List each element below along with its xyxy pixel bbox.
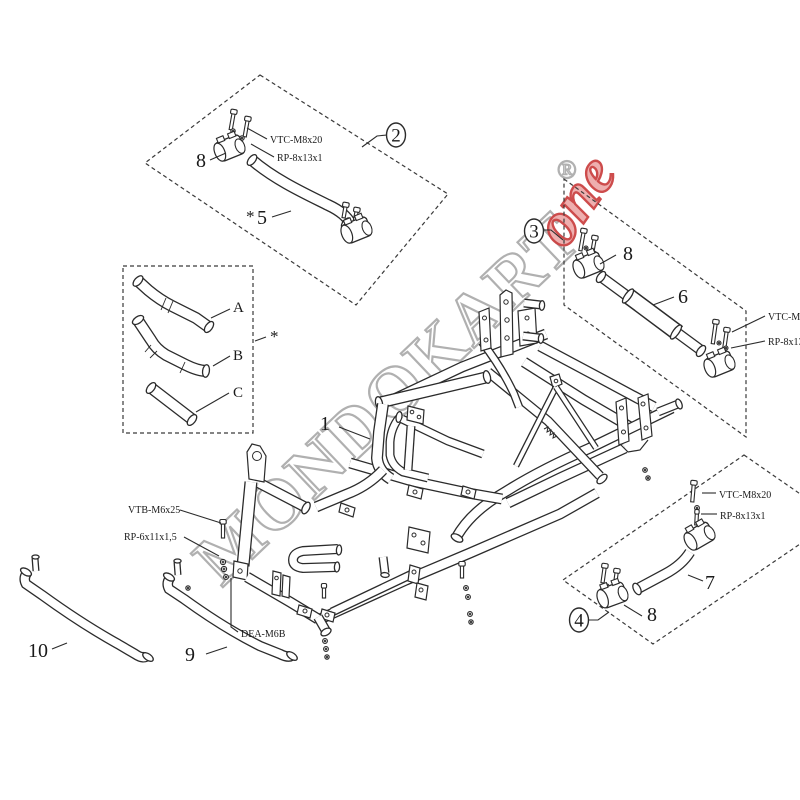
svg-text:RP-8x13x1: RP-8x13x1 xyxy=(277,153,323,164)
svg-text:4: 4 xyxy=(574,611,584,632)
svg-text:6: 6 xyxy=(678,286,688,308)
svg-text:8: 8 xyxy=(623,243,633,265)
svg-text:®: ® xyxy=(557,155,577,184)
svg-text:2: 2 xyxy=(391,126,401,147)
svg-text:1: 1 xyxy=(320,413,330,435)
svg-text:VTC-M8x20: VTC-M8x20 xyxy=(768,312,800,323)
svg-text:9: 9 xyxy=(185,644,195,666)
svg-text:8: 8 xyxy=(647,604,657,626)
svg-text:*: * xyxy=(270,327,279,346)
svg-text:10: 10 xyxy=(28,640,48,662)
svg-text:8: 8 xyxy=(196,150,206,172)
svg-text:VTC-M8x20: VTC-M8x20 xyxy=(270,135,322,146)
svg-text:VTB-M6x25: VTB-M6x25 xyxy=(128,505,180,516)
svg-text:7: 7 xyxy=(705,572,715,594)
svg-text:RP-8x13x1: RP-8x13x1 xyxy=(720,511,766,522)
svg-text:VTC-M8x20: VTC-M8x20 xyxy=(719,490,771,501)
svg-text:B: B xyxy=(233,348,243,364)
svg-text:RP-8x13x1: RP-8x13x1 xyxy=(768,337,800,348)
svg-text:C: C xyxy=(233,385,243,401)
svg-text:RP-6x11x1,5: RP-6x11x1,5 xyxy=(124,532,177,543)
svg-text:DEA-M6B: DEA-M6B xyxy=(241,629,286,640)
svg-text:*: * xyxy=(246,207,255,226)
svg-text:5: 5 xyxy=(257,207,267,229)
svg-text:3: 3 xyxy=(529,222,539,243)
svg-text:A: A xyxy=(233,300,244,316)
